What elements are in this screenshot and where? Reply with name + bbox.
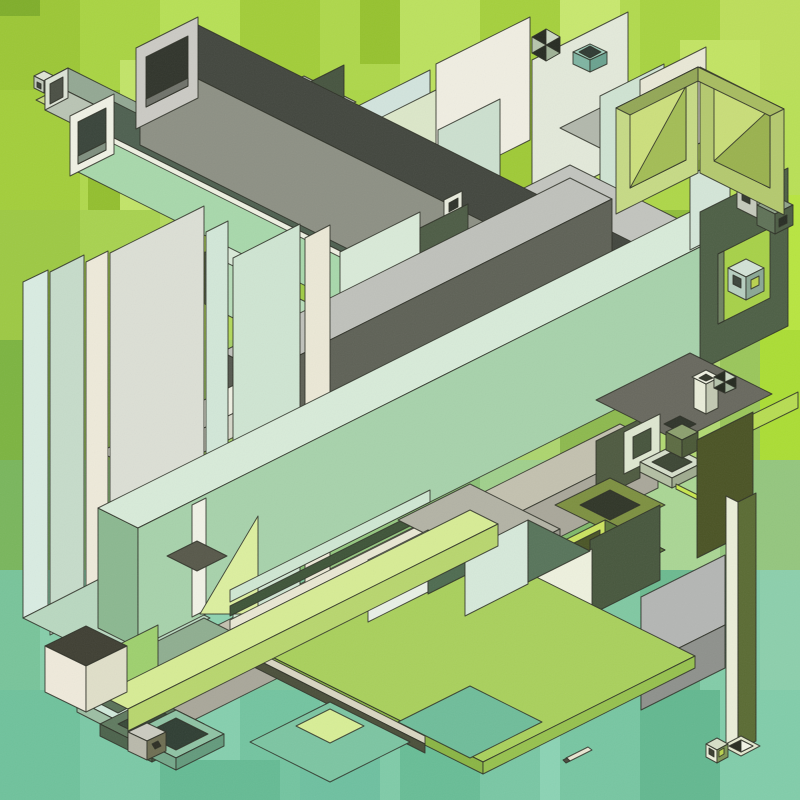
film-grain-overlay <box>0 0 800 800</box>
artwork-canvas <box>0 0 800 800</box>
generative-art-frame <box>0 0 800 800</box>
